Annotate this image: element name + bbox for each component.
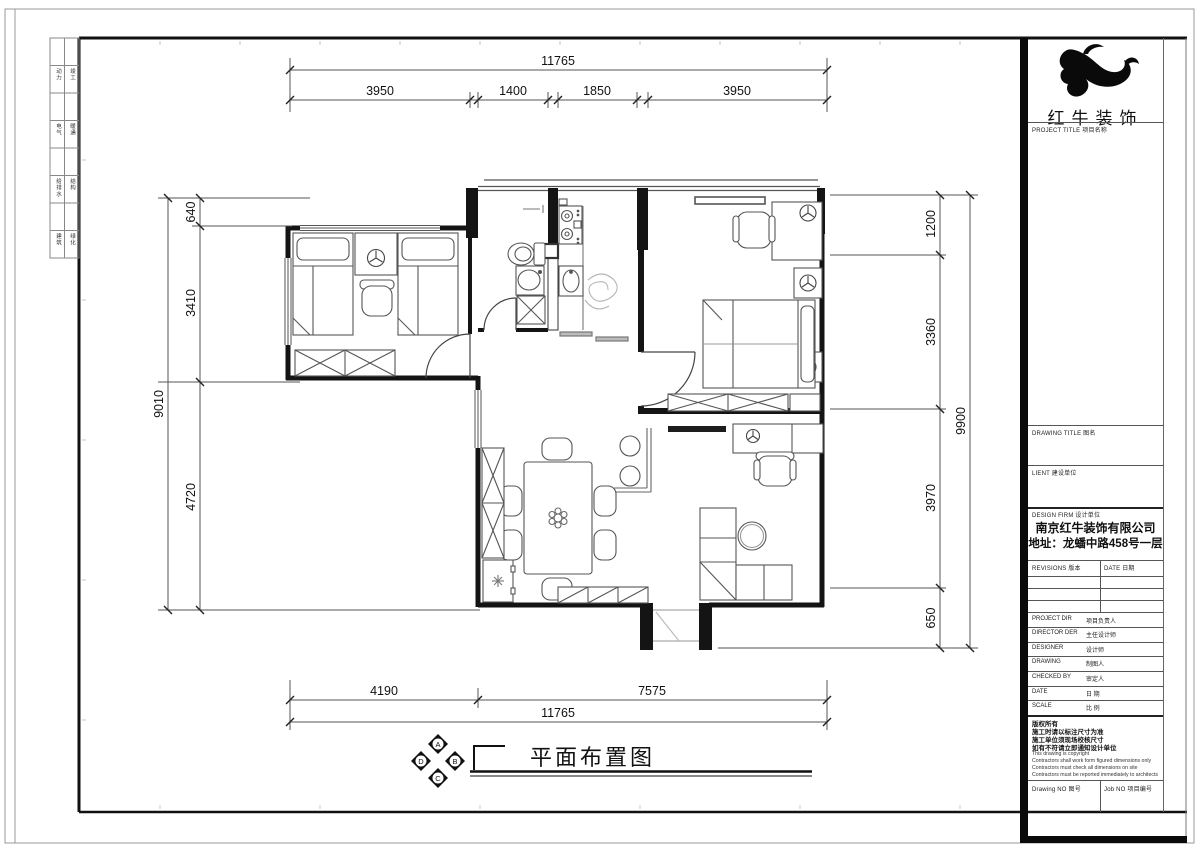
copyright-line-en: Contractors must check all dimensions on… (1032, 765, 1138, 771)
kitchen-sketch (585, 274, 617, 309)
signoff-cell: 暖通 (66, 123, 77, 136)
single-bed-right (398, 233, 458, 335)
svg-text:C: C (435, 774, 441, 783)
curtain-pelmet (695, 197, 765, 204)
tv (668, 426, 726, 432)
client-label: LIENT 建设单位 (1032, 468, 1077, 477)
kids-wardrobe (295, 350, 395, 376)
dim-bottom-1: 4190 (370, 684, 398, 698)
coffee-table (738, 522, 766, 550)
dimension-lines (158, 58, 978, 730)
signoff-cell: 结构 (66, 178, 77, 191)
ceiling-fan-icon (368, 250, 385, 267)
dim-left-total: 9010 (152, 390, 166, 418)
nightstand-1 (794, 268, 822, 298)
bar-stools (620, 436, 640, 486)
revisions-label: REVISIONS 版本 (1032, 563, 1081, 572)
bath-sink (516, 266, 544, 295)
dimension-labels: 11765 3950 1400 1850 3950 4190 7575 1176… (152, 54, 968, 720)
dim-left-1: 640 (184, 202, 198, 223)
light-icon-1 (800, 205, 816, 221)
dim-top-2: 1400 (499, 84, 527, 98)
signoff-cell: 竣工 (66, 68, 77, 81)
dim-top-1: 3950 (366, 84, 394, 98)
stove (559, 199, 582, 244)
study-desk (733, 424, 823, 453)
dim-right-3: 3970 (924, 484, 938, 512)
brand-logo (1053, 40, 1139, 102)
double-bed (703, 300, 815, 388)
design-firm-label: DESIGN FIRM 设计单位 (1032, 510, 1100, 519)
master-wardrobe (668, 394, 820, 411)
towel-rail (523, 205, 543, 213)
dim-top-total: 11765 (541, 54, 575, 68)
master-desk-chair (733, 212, 775, 248)
direction-marker-icon: A B C D (411, 734, 465, 788)
bath-cabinet (517, 296, 545, 324)
plan-title-group: 平面布置图 A B C D (411, 734, 812, 788)
toilet (508, 243, 545, 265)
signoff-cell: 建筑 (52, 233, 63, 246)
plan-title: 平面布置图 (530, 745, 655, 770)
dim-bottom-total: 11765 (541, 706, 575, 720)
dim-right-2: 3360 (924, 318, 938, 346)
copyright-line-en: Contractors shall work form figured dime… (1032, 758, 1151, 764)
job-no-label: Job NO 项目编号 (1104, 784, 1152, 793)
dim-top-3: 1850 (583, 84, 611, 98)
fold-ticks (82, 41, 960, 809)
signoff-cell: 动力 (52, 68, 63, 81)
shoe-cabinet (558, 587, 648, 603)
dim-right-1: 1200 (924, 210, 938, 238)
svg-text:B: B (452, 757, 457, 766)
title-block: 红牛装饰 PROJECT TITLE 项目名称 DRAWING TITLE 图名… (1028, 38, 1164, 812)
firm-address: 地址：龙蟠中路458号一层 (1028, 535, 1163, 551)
svg-text:D: D (418, 757, 424, 766)
dimension-ticks (164, 66, 974, 726)
dim-left-2: 3410 (184, 289, 198, 317)
kitchen-sink (559, 266, 583, 296)
date-col-label: DATE 日期 (1104, 563, 1135, 572)
drawing-sheet: 11765 3950 1400 1850 3950 4190 7575 1176… (0, 0, 1200, 852)
fridge (483, 560, 515, 602)
drawing-no-label: Drawing NO 图号 (1032, 784, 1081, 793)
signoff-cell: 绿化 (66, 233, 77, 246)
titleblock-divider-bar (1020, 38, 1028, 843)
signoff-cell: 电气 (52, 123, 63, 136)
study-chair (754, 452, 796, 486)
firm-name: 南京红牛装饰有限公司 (1028, 519, 1163, 536)
dim-bottom-2: 7575 (638, 684, 666, 698)
drawing-title-label: DRAWING TITLE 图名 (1032, 428, 1096, 437)
single-bed-left (293, 233, 353, 335)
sofa (700, 508, 792, 600)
dim-top-4: 3950 (723, 84, 751, 98)
signoff-cell: 给排水 (52, 178, 63, 198)
paper-border (5, 9, 1194, 843)
tall-cabinet (482, 448, 504, 558)
table-flower-icon (549, 508, 567, 528)
project-title-label: PROJECT TITLE 项目名称 (1032, 125, 1107, 134)
shaft (544, 244, 558, 330)
titleblock-bottom-bar (1020, 836, 1187, 843)
dim-right-4: 650 (924, 608, 938, 629)
kids-chair (360, 280, 394, 316)
dim-right-total: 9900 (954, 407, 968, 435)
svg-text:A: A (435, 740, 440, 749)
copyright-line-en: Contractors must be reported immediately… (1032, 772, 1158, 778)
dim-left-3: 4720 (184, 483, 198, 511)
window-band-north (478, 180, 820, 191)
copyright-line-en: This drawing is copyright (1032, 751, 1089, 757)
